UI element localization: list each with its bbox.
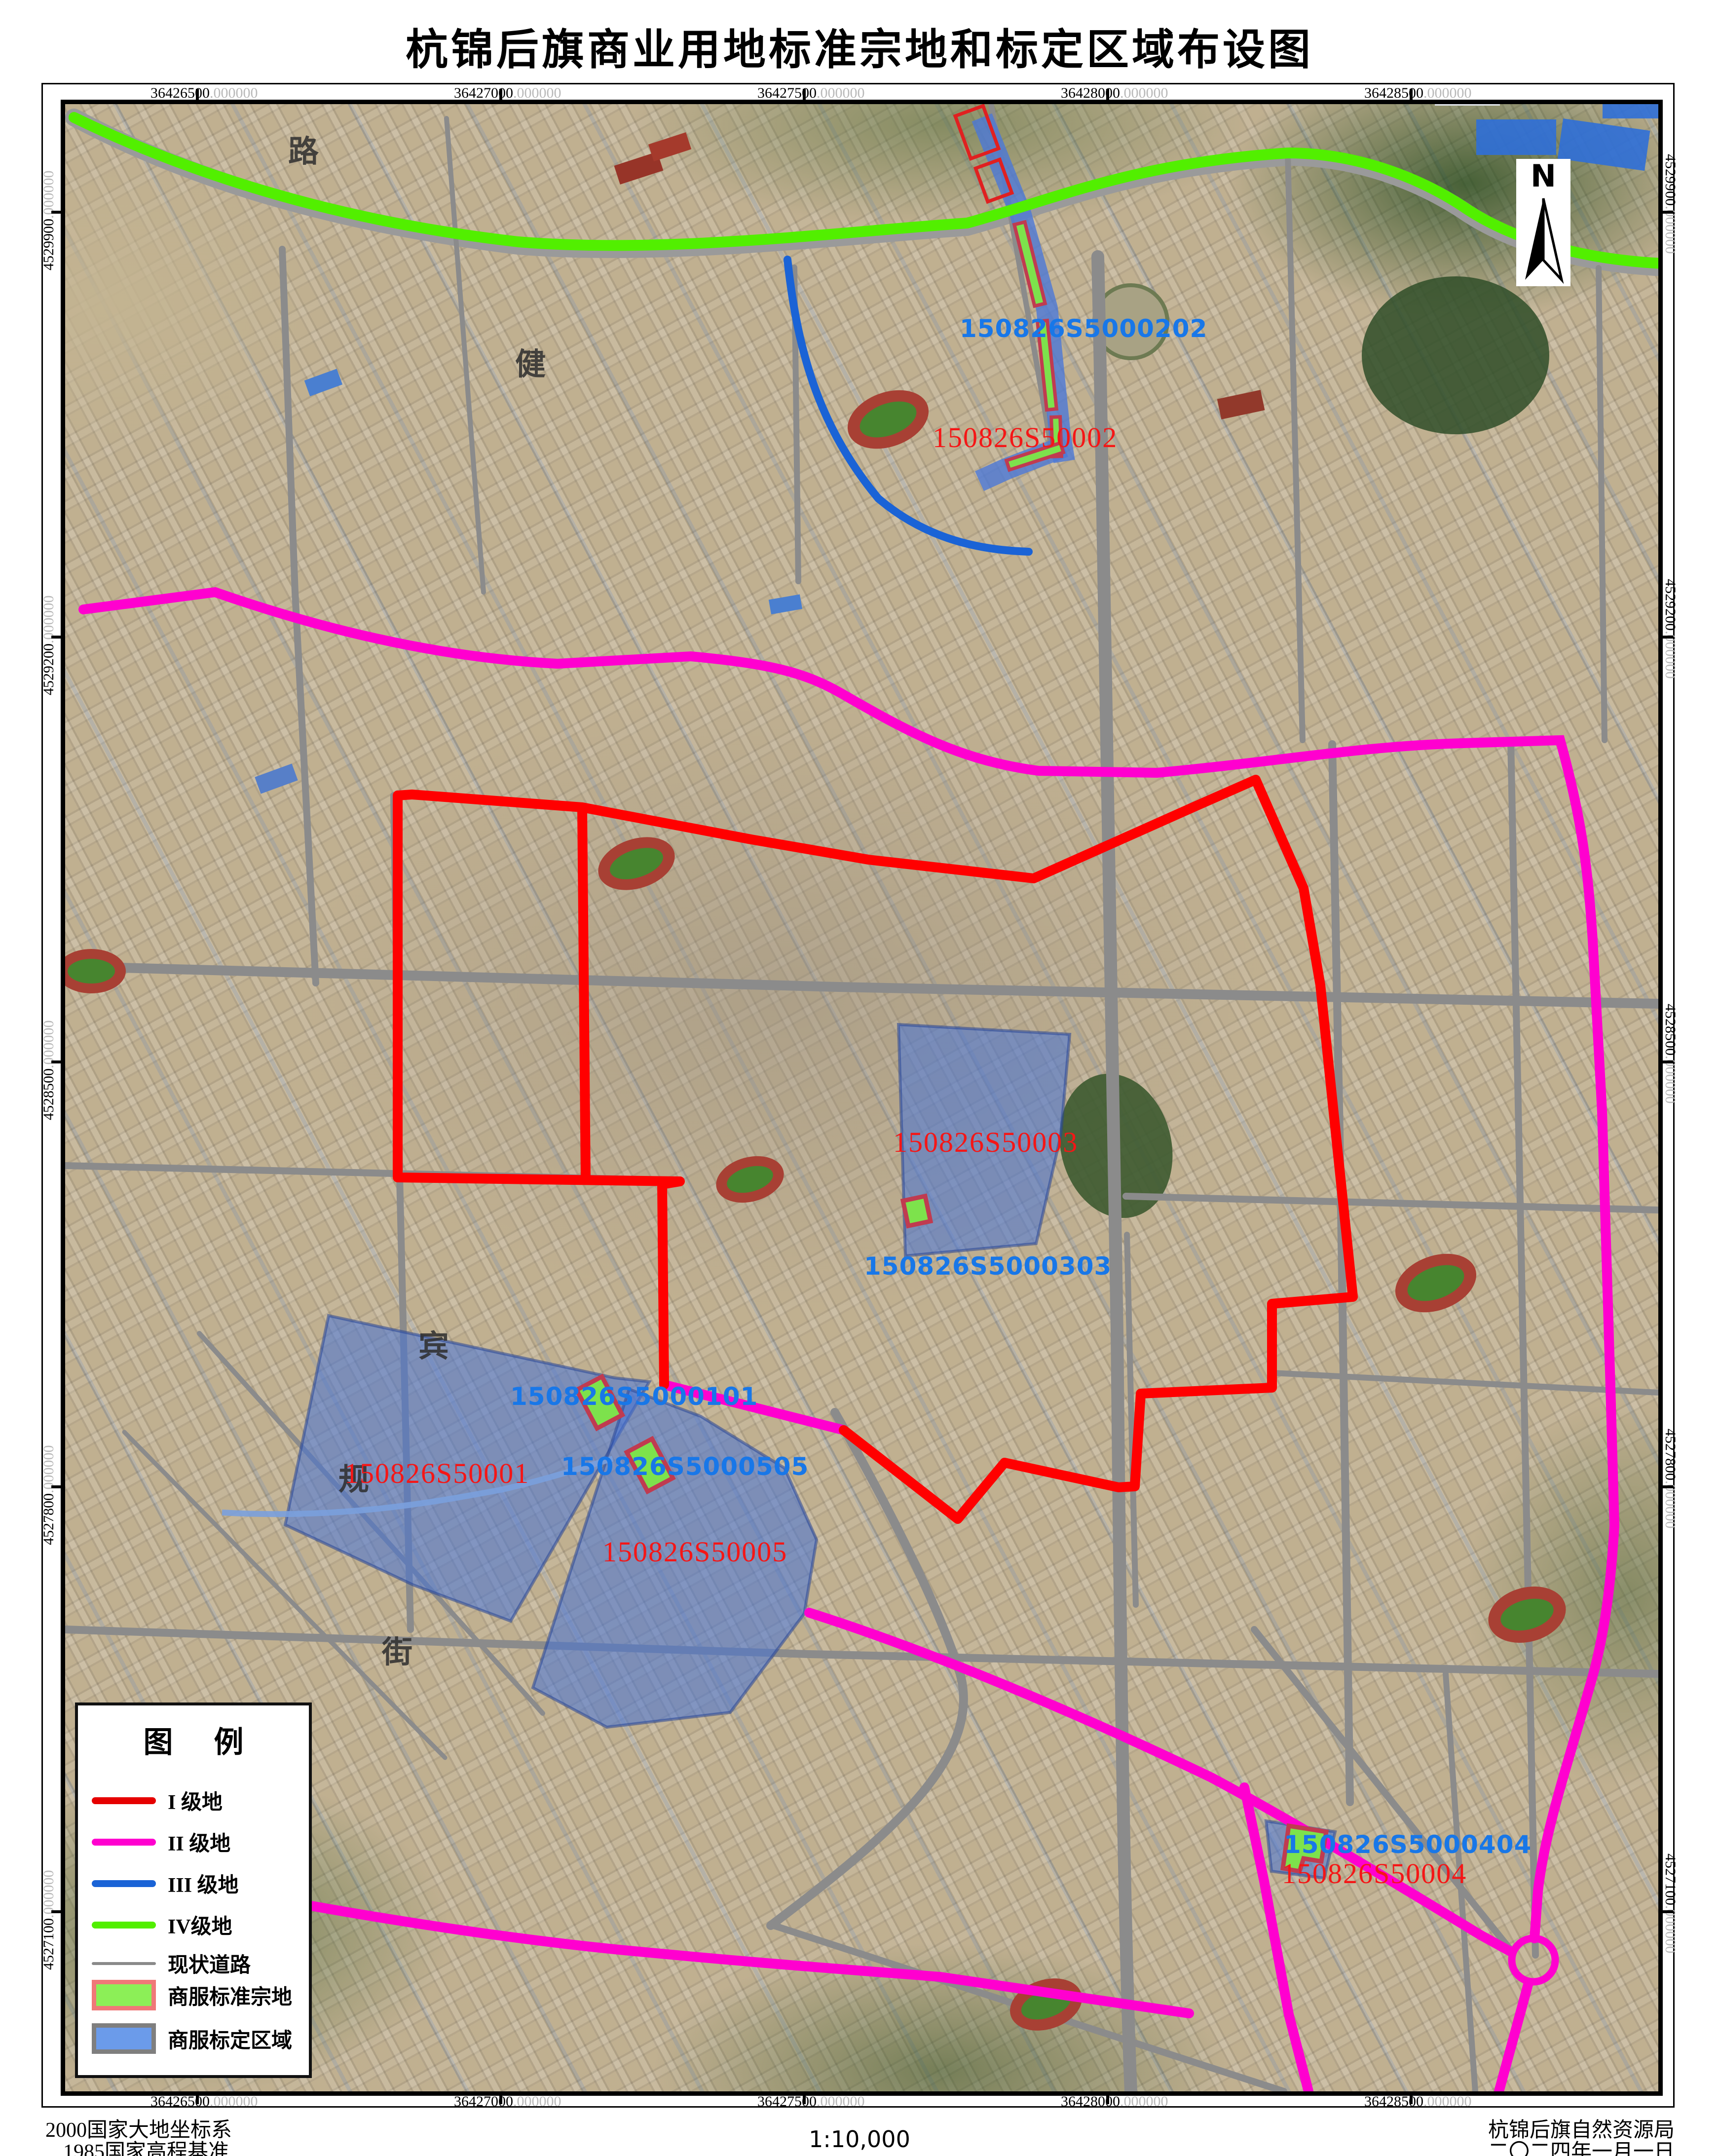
grid-label-top: 36428500.000000 [1364, 85, 1472, 102]
street-name: 路 [288, 126, 319, 171]
level1-line-swatch [92, 1797, 156, 1804]
parcel-label-red: 150826S50002 [933, 421, 1118, 454]
grid-label-left: 4529200.000000 [40, 596, 57, 696]
legend-item-label: IV级地 [168, 1910, 232, 1940]
parcel-150826S5000303 [903, 1196, 931, 1226]
grid-tick [1410, 2091, 1413, 2104]
north-arrow-icon [1516, 193, 1570, 285]
grid-tick [499, 89, 502, 104]
legend-item-label: 商服标定区域 [168, 2024, 292, 2054]
legend-item-level1: I 级地 [92, 1785, 223, 1816]
grid-label-bottom: 36427000.000000 [454, 2093, 561, 2110]
grid-tick [51, 211, 65, 214]
legend-panel: 图 例 I 级地 II 级地 III 级地 IV级地 现状道路 [75, 1702, 312, 2078]
parcel-label-blue: 150826S5000303 [864, 1252, 1112, 1281]
page-title: 杭锦后旗商业用地标准宗地和标定区域布设图 [0, 15, 1719, 76]
grid-label-right: 4527800.000000 [1662, 1429, 1679, 1529]
legend-item-label: II 级地 [168, 1827, 230, 1857]
grid-label-left: 4528500.000000 [40, 1021, 57, 1121]
parcel-label-blue: 150826S5000505 [561, 1452, 809, 1481]
parcel-label-blue: 150826S5000202 [960, 314, 1207, 343]
parcel-swatch [92, 1980, 156, 2010]
grid-tick [1106, 2091, 1109, 2104]
legend-item-level4: IV级地 [92, 1910, 232, 1940]
parcel-label-blue: 150826S5000101 [510, 1382, 758, 1411]
grid-tick [1659, 636, 1673, 639]
grid-label-top: 36427000.000000 [454, 85, 561, 102]
parcel-label-red: 150826S50005 [602, 1535, 787, 1568]
grid-tick [51, 1910, 65, 1913]
grid-label-left: 4527100.000000 [40, 1870, 57, 1970]
grid-label-left: 4529900.000000 [40, 171, 57, 271]
street-name: 街 [382, 1627, 412, 1671]
level3-line-swatch [92, 1880, 156, 1887]
grid-tick [1659, 1910, 1673, 1913]
grid-label-bottom: 36426500.000000 [150, 2093, 258, 2110]
legend-item-label: I 级地 [168, 1785, 223, 1816]
parcel-label-blue: 150826S5000404 [1284, 1830, 1532, 1859]
street-name: 宾 [418, 1321, 449, 1365]
grid-label-left: 4527800.000000 [40, 1445, 57, 1546]
grid-tick [499, 2091, 502, 2104]
legend-item-parcel: 商服标准宗地 [92, 1980, 292, 2010]
designated-regions [285, 1024, 1335, 1878]
parcel-label-red: 150826S50001 [344, 1457, 529, 1490]
parcel-label-red: 150826S50004 [1282, 1857, 1467, 1890]
legend-item-level3: III 级地 [92, 1868, 239, 1898]
grid-tick [51, 1485, 65, 1488]
grid-tick [1659, 211, 1673, 214]
level2-line-swatch [92, 1839, 156, 1846]
grid-tick [1106, 89, 1109, 104]
grid-label-bottom: 36428500.000000 [1364, 2093, 1472, 2110]
region-swatch [92, 2023, 156, 2054]
grid-label-right: 4527100.000000 [1662, 1853, 1679, 1954]
grid-tick [803, 89, 806, 104]
legend-item-region: 商服标定区域 [92, 2023, 292, 2054]
grid-label-right: 4528500.000000 [1662, 1004, 1679, 1104]
grid-label-right: 4529900.000000 [1662, 154, 1679, 254]
grid-tick [196, 2091, 199, 2104]
legend-item-label: 现状道路 [168, 1948, 251, 1978]
grid-tick [1659, 1060, 1673, 1063]
road-line-swatch [92, 1962, 156, 1965]
grid-tick [1659, 1485, 1673, 1488]
map-scale: 1:10,000 [0, 2126, 1719, 2153]
legend-title: 图 例 [78, 1718, 309, 1761]
north-arrow: N [1516, 159, 1570, 286]
grid-label-bottom: 36428000.000000 [1061, 2093, 1168, 2110]
grid-tick [803, 2091, 806, 2104]
parcel-label-red: 150826S50003 [893, 1126, 1078, 1159]
level4-line-swatch [92, 1922, 156, 1929]
grid-label-top: 36426500.000000 [150, 85, 258, 102]
grid-label-top: 36427500.000000 [757, 85, 865, 102]
street-name: 健 [515, 339, 546, 383]
grid-tick [51, 636, 65, 639]
grid-tick [196, 89, 199, 104]
legend-item-road: 现状道路 [92, 1948, 251, 1978]
grid-tick [1410, 89, 1413, 104]
grid-label-right: 4529200.000000 [1662, 579, 1679, 679]
grid-label-top: 36428000.000000 [1061, 85, 1168, 102]
north-arrow-label: N [1516, 159, 1570, 193]
map-sheet: 杭锦后旗商业用地标准宗地和标定区域布设图 [0, 0, 1719, 2156]
grid-label-bottom: 36427500.000000 [757, 2093, 865, 2110]
map-canvas: 路 健 宾 规 街 150826S50001 150826S50002 1508… [65, 104, 1658, 2091]
legend-item-level2: II 级地 [92, 1827, 230, 1857]
grid-tick [51, 1060, 65, 1063]
map-date: 二〇二四年一月一日 [1488, 2135, 1675, 2156]
legend-item-label: III 级地 [168, 1868, 239, 1898]
legend-item-label: 商服标准宗地 [168, 1980, 292, 2010]
